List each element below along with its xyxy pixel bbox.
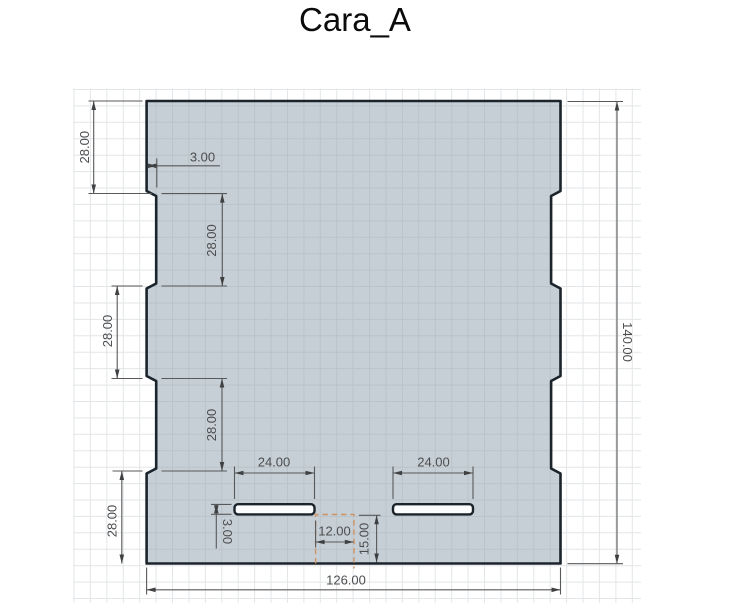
svg-text:28.00: 28.00: [204, 409, 219, 442]
svg-text:28.00: 28.00: [204, 224, 219, 257]
svg-text:24.00: 24.00: [417, 455, 450, 470]
svg-text:28.00: 28.00: [105, 505, 120, 538]
svg-text:140.00: 140.00: [620, 322, 635, 362]
svg-text:3.00: 3.00: [220, 519, 235, 544]
svg-text:15.00: 15.00: [357, 523, 372, 556]
svg-text:28.00: 28.00: [77, 131, 92, 164]
svg-text:28.00: 28.00: [100, 315, 115, 348]
svg-text:24.00: 24.00: [258, 455, 291, 470]
svg-text:12.00: 12.00: [318, 524, 351, 539]
svg-text:126.00: 126.00: [326, 573, 366, 588]
svg-text:Cara_A: Cara_A: [299, 1, 411, 38]
svg-text:3.00: 3.00: [190, 150, 215, 165]
